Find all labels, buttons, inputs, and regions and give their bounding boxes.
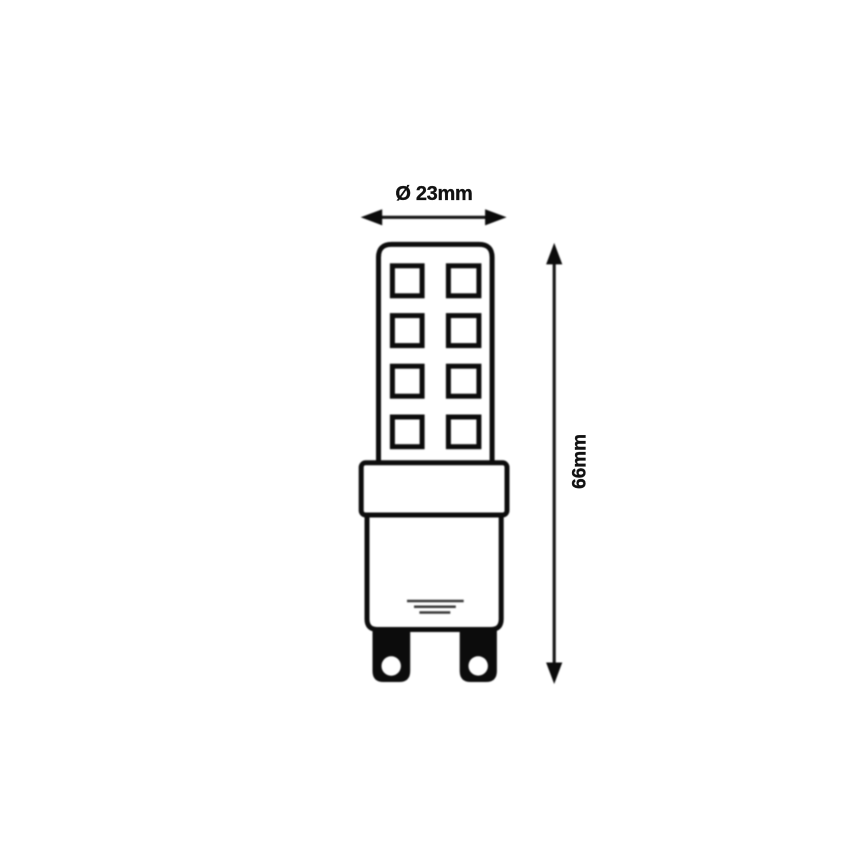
svg-text:Ø 23mm: Ø 23mm (395, 183, 472, 205)
svg-text:66mm: 66mm (570, 434, 591, 489)
